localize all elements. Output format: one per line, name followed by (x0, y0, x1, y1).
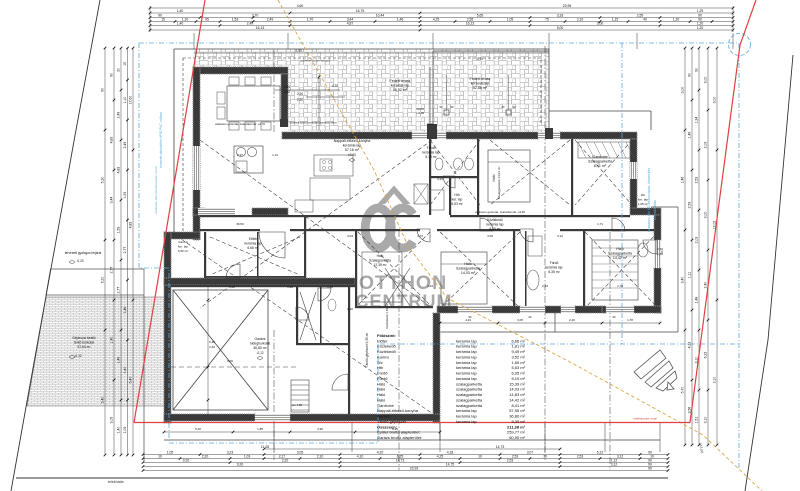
svg-text:1,13: 1,13 (272, 153, 278, 157)
svg-text:1,40: 1,40 (110, 337, 114, 344)
svg-text:57,16 m²: 57,16 m² (345, 148, 360, 152)
svg-text:Közlekedő: Közlekedő (487, 218, 503, 222)
svg-text:6,35 m²: 6,35 m² (548, 270, 560, 274)
svg-text:2,40: 2,40 (657, 247, 663, 251)
svg-text:1,73: 1,73 (417, 234, 423, 238)
svg-text:2,40: 2,40 (297, 92, 303, 96)
svg-text:4,87: 4,87 (347, 21, 354, 25)
svg-text:5,12: 5,12 (597, 450, 604, 454)
svg-text:1,46: 1,46 (397, 17, 404, 21)
svg-text:1,40: 1,40 (177, 9, 184, 13)
svg-text:3,12: 3,12 (617, 454, 624, 458)
svg-text:1,34: 1,34 (695, 117, 699, 124)
svg-text:1,71: 1,71 (597, 222, 603, 226)
svg-text:5,19 m²: 5,19 m² (425, 155, 437, 159)
svg-text:Előtér: Előtér (249, 237, 259, 241)
svg-text:1,05: 1,05 (167, 450, 174, 454)
svg-text:1,40: 1,40 (177, 21, 184, 25)
svg-text:Fürdő: Fürdő (550, 261, 559, 265)
svg-text:1,53: 1,53 (232, 17, 239, 21)
svg-text:Földszint:: Földszint: (377, 333, 396, 338)
svg-text:14,42 m²: 14,42 m² (509, 397, 525, 402)
svg-text:1,20: 1,20 (697, 21, 704, 25)
svg-text:75: 75 (545, 17, 549, 21)
svg-text:Háló: Háló (377, 387, 386, 392)
svg-text:szalagparketta: szalagparketta (456, 381, 483, 386)
svg-text:9,20: 9,20 (101, 277, 105, 284)
svg-text:14,03 m²: 14,03 m² (509, 387, 525, 392)
svg-text:vasbeton lemez szegély: vasbeton lemez szegély (300, 59, 331, 63)
svg-text:60,90 m²: 60,90 m² (509, 435, 525, 440)
svg-text:2,53: 2,53 (688, 202, 692, 209)
svg-text:1,46: 1,46 (681, 177, 685, 184)
svg-text:3,12: 3,12 (557, 234, 563, 238)
svg-text:3,05: 3,05 (297, 450, 304, 454)
svg-text:1,78: 1,78 (627, 318, 633, 322)
svg-text:4,83: 4,83 (117, 167, 121, 174)
svg-text:3,12: 3,12 (611, 462, 618, 466)
svg-text:1,65 m²: 1,65 m² (638, 202, 649, 206)
svg-text:3,07: 3,07 (527, 450, 534, 454)
svg-text:15: 15 (161, 17, 165, 21)
svg-text:-0,12: -0,12 (256, 351, 263, 355)
svg-text:Fedett terasz: Fedett terasz (470, 77, 491, 81)
svg-text:2,97: 2,97 (237, 153, 243, 157)
svg-text:kerámia lap: kerámia lap (456, 419, 477, 424)
svg-text:95: 95 (205, 17, 209, 21)
svg-text:1,65 m²: 1,65 m² (511, 360, 525, 365)
svg-text:57,55 m²: 57,55 m² (509, 408, 525, 413)
svg-text:36,80 m²: 36,80 m² (509, 414, 525, 419)
svg-text:3,00: 3,00 (704, 212, 708, 219)
svg-text:kerámia lap: kerámia lap (456, 349, 477, 354)
svg-text:2,53: 2,53 (577, 454, 584, 458)
svg-text:1,70: 1,70 (307, 17, 314, 21)
svg-text:1,46: 1,46 (123, 307, 127, 314)
svg-text:kerámia lap: kerámia lap (422, 150, 439, 154)
svg-text:Garázs bruttó alapterület:: Garázs bruttó alapterület: (377, 435, 422, 440)
svg-text:3,04: 3,04 (347, 234, 353, 238)
svg-text:10: 10 (543, 454, 547, 458)
svg-text:2,77: 2,77 (117, 287, 121, 294)
svg-text:kerámia lap: kerámia lap (456, 344, 477, 349)
svg-text:10: 10 (478, 454, 482, 458)
svg-text:Fürdő: Fürdő (377, 376, 388, 381)
svg-text:3,23: 3,23 (227, 450, 234, 454)
svg-text:211,38 m²: 211,38 m² (507, 424, 526, 429)
svg-text:5,40: 5,40 (195, 427, 201, 431)
svg-text:Hth: Hth (454, 193, 459, 197)
svg-text:2,40: 2,40 (284, 85, 290, 89)
svg-text:9,49 m²: 9,49 m² (489, 227, 501, 231)
svg-text:12,39 m²: 12,39 m² (373, 263, 387, 267)
svg-text:5,53 m²: 5,53 m² (451, 202, 463, 206)
svg-text:kerámia lap: kerámia lap (456, 365, 477, 370)
svg-text:3,00: 3,00 (704, 77, 708, 84)
svg-text:= 0,00: = 0,00 (416, 111, 425, 115)
svg-text:Wc: Wc (641, 193, 646, 197)
svg-text:2,77: 2,77 (110, 267, 114, 274)
svg-text:-0,12: -0,12 (74, 354, 81, 358)
svg-text:30: 30 (117, 68, 121, 72)
svg-text:3,00: 3,00 (597, 21, 604, 25)
svg-text:Fedett terasz: Fedett terasz (390, 79, 411, 83)
svg-text:kerámia lap: kerámia lap (486, 222, 503, 226)
svg-text:Kamra: Kamra (377, 354, 390, 359)
svg-text:2,49: 2,49 (117, 112, 121, 119)
svg-text:1,29: 1,29 (697, 9, 704, 13)
svg-text:Háló: Háló (377, 392, 386, 397)
svg-text:Hth: Hth (377, 365, 383, 370)
svg-text:Garázs: Garázs (255, 337, 266, 341)
svg-text:9,35 m²: 9,35 m² (511, 419, 525, 424)
svg-text:16,13: 16,13 (466, 21, 475, 25)
svg-text:2,10: 2,10 (317, 454, 324, 458)
svg-text:2,80: 2,80 (297, 98, 303, 102)
svg-text:Háló: Háló (464, 262, 471, 266)
svg-text:5,53 m²: 5,53 m² (511, 365, 525, 370)
svg-text:Nappali-étkező-konyha: Nappali-étkező-konyha (334, 139, 371, 143)
svg-text:térkő burkolat: térkő burkolat (74, 340, 94, 344)
svg-text:90: 90 (110, 73, 114, 77)
svg-text:kerámia lap: kerámia lap (343, 143, 362, 147)
svg-text:3,33: 3,33 (557, 13, 564, 17)
svg-text:közműkiváltás: közműkiváltás (653, 200, 657, 220)
svg-text:2,40: 2,40 (704, 282, 708, 289)
svg-text:4,10: 4,10 (377, 450, 384, 454)
svg-text:10: 10 (158, 454, 162, 458)
svg-text:6,00: 6,00 (227, 359, 233, 363)
svg-text:Sötétek külső burkolat-pusztul: Sötétek külső burkolat-pusztuló elem (289, 121, 337, 125)
svg-text:2,20: 2,20 (282, 458, 289, 462)
svg-text:14,83 m²: 14,83 m² (509, 392, 525, 397)
svg-text:1,81 m²: 1,81 m² (511, 344, 525, 349)
svg-text:5,00: 5,00 (557, 26, 564, 30)
svg-text:5,40: 5,40 (101, 397, 105, 404)
svg-text:90: 90 (688, 73, 692, 77)
svg-text:4,23: 4,23 (465, 318, 471, 322)
svg-text:52,86 m²: 52,86 m² (473, 86, 488, 90)
svg-text:2,03: 2,03 (704, 142, 708, 149)
svg-text:2,49: 2,49 (267, 17, 274, 21)
svg-text:5,70: 5,70 (681, 387, 685, 394)
svg-text:szabályozási vonal: szabályozási vonal (633, 416, 657, 420)
svg-text:Nappali-étkező-konyha: Nappali-étkező-konyha (377, 408, 419, 413)
svg-text:2,20: 2,20 (569, 318, 575, 322)
svg-text:kerámia lap: kerámia lap (244, 241, 261, 245)
svg-text:4,60: 4,60 (297, 4, 304, 8)
svg-text:Háló: Háló (492, 174, 496, 181)
svg-text:kerámia lap: kerámia lap (545, 265, 562, 269)
svg-text:4,70: 4,70 (477, 57, 483, 61)
svg-text:-0,20: -0,20 (76, 259, 83, 263)
svg-text:5,19 m²: 5,19 m² (511, 376, 525, 381)
svg-text:3,33: 3,33 (437, 177, 443, 181)
svg-text:Fürdő: Fürdő (427, 146, 436, 150)
svg-text:23,95: 23,95 (563, 4, 572, 8)
svg-text:14,03 m²: 14,03 m² (461, 271, 476, 275)
svg-text:3,44: 3,44 (110, 197, 114, 204)
svg-text:Közlekedő: Közlekedő (377, 349, 396, 354)
svg-text:szalagparketta: szalagparketta (456, 403, 483, 408)
svg-text:Közlekedő 1,81 m²: Közlekedő 1,81 m² (385, 303, 389, 328)
svg-text:Összesen:: Összesen: (377, 424, 397, 429)
svg-text:3,10: 3,10 (704, 417, 708, 424)
svg-text:4,00: 4,00 (229, 285, 235, 289)
svg-text:kerámia lap: kerámia lap (456, 338, 477, 343)
svg-text:Garázs: Garázs (377, 414, 390, 419)
svg-text:2,80: 2,80 (284, 90, 290, 94)
svg-text:57,64 m²: 57,64 m² (77, 345, 91, 349)
svg-text:16,75: 16,75 (356, 9, 365, 13)
svg-text:Wc: Wc (377, 360, 383, 365)
svg-text:kerámia lap: kerámia lap (456, 414, 477, 419)
svg-text:tervezett gyalogos bejárat: tervezett gyalogos bejárat (65, 251, 102, 255)
svg-text:14,75: 14,75 (446, 462, 455, 466)
svg-text:3,00: 3,00 (681, 87, 685, 94)
svg-text:4,10: 4,10 (357, 454, 364, 458)
svg-text:1,46: 1,46 (688, 132, 692, 139)
svg-text:2,20: 2,20 (347, 307, 353, 311)
svg-text:15,39 m²: 15,39 m² (509, 381, 525, 386)
svg-text:1,53: 1,53 (123, 192, 127, 199)
svg-text:1,15: 1,15 (612, 17, 619, 21)
svg-text:2,53: 2,53 (695, 177, 699, 184)
svg-text:11,60: 11,60 (294, 49, 302, 53)
svg-text:kerámia lap: kerámia lap (391, 83, 410, 87)
svg-text:Szalagparketta: Szalagparketta (369, 258, 391, 262)
svg-text:ker. lap: ker. lap (638, 197, 648, 201)
svg-text:15: 15 (123, 62, 127, 66)
svg-text:2,10: 2,10 (577, 17, 584, 21)
svg-text:259,77 m²: 259,77 m² (507, 430, 526, 435)
svg-text:16,13: 16,13 (256, 26, 265, 30)
svg-text:3,70: 3,70 (252, 13, 259, 17)
svg-text:Gardrobe: Gardrobe (377, 403, 395, 408)
svg-text:kerámia lap: kerámia lap (456, 371, 477, 376)
svg-text:3,52 m²: 3,52 m² (178, 249, 189, 253)
svg-text:2,40: 2,40 (209, 345, 215, 349)
svg-text:4,83: 4,83 (129, 222, 133, 229)
svg-text:4,25: 4,25 (487, 234, 493, 238)
svg-text:Háló: Háló (377, 381, 386, 386)
svg-text:1,48: 1,48 (695, 297, 699, 304)
svg-text:kerámia lap: kerámia lap (456, 354, 477, 359)
svg-text:vasbeton gerenda, zsaluzási sí: vasbeton gerenda, zsaluzási sík: +3,25 (475, 210, 525, 214)
svg-text:90: 90 (101, 88, 105, 92)
svg-text:6,66 m²: 6,66 m² (511, 338, 525, 343)
svg-text:Háló: Háló (377, 254, 384, 258)
svg-text:vasbeton gerenda, zsaluzási sí: vasbeton gerenda, zsaluzási sík: +2,70 (215, 122, 265, 126)
svg-text:6,00: 6,00 (427, 122, 433, 126)
svg-text:4,90: 4,90 (317, 427, 323, 431)
svg-text:1,51: 1,51 (695, 417, 699, 424)
svg-text:1,20: 1,20 (697, 26, 704, 30)
svg-text:2,49: 2,49 (247, 21, 254, 25)
svg-text:4,70: 4,70 (332, 84, 338, 88)
svg-text:9,20: 9,20 (237, 462, 244, 466)
svg-text:11,08: 11,08 (261, 445, 269, 449)
svg-text:2,03: 2,03 (695, 237, 699, 244)
svg-text:1,50: 1,50 (657, 252, 663, 256)
svg-text:2,49: 2,49 (123, 142, 127, 149)
svg-text:szabadon álló közművezeték, iv: szabadon álló közművezeték, ivóvíz (154, 166, 158, 214)
svg-text:hidegburkolat: hidegburkolat (250, 341, 270, 345)
svg-text:Gépkocsi beálló: Gépkocsi beálló (72, 336, 96, 340)
svg-text:14,73: 14,73 (496, 445, 505, 449)
svg-text:5,65: 5,65 (477, 13, 484, 17)
svg-text:Szalagparketta: Szalagparketta (456, 266, 480, 270)
svg-text:1,46: 1,46 (117, 357, 121, 364)
svg-text:5,40: 5,40 (209, 340, 215, 344)
svg-text:90: 90 (695, 68, 699, 72)
svg-text:1,05: 1,05 (507, 17, 514, 21)
svg-text:1,05: 1,05 (123, 427, 127, 434)
svg-text:1,20: 1,20 (287, 285, 293, 289)
svg-text:1,78: 1,78 (617, 284, 623, 288)
svg-text:5,40: 5,40 (129, 377, 133, 384)
svg-text:14,42 m²: 14,42 m² (613, 256, 628, 260)
svg-text:4,25: 4,25 (437, 454, 444, 458)
svg-text:4,23: 4,23 (688, 342, 692, 349)
svg-text:3,00: 3,00 (713, 97, 717, 104)
svg-text:4,25: 4,25 (433, 17, 440, 21)
svg-text:2,33: 2,33 (542, 284, 548, 288)
svg-text:23,93: 23,93 (410, 466, 419, 470)
svg-text:3,10: 3,10 (713, 377, 717, 384)
svg-text:4,83: 4,83 (110, 137, 114, 144)
svg-text:8,41 m²: 8,41 m² (511, 403, 525, 408)
svg-text:36,80 m²: 36,80 m² (253, 346, 267, 350)
svg-text:tervezett vízbekötés HP30 PVC: tervezett vízbekötés HP30 PVC csőben (159, 112, 163, 168)
svg-text:Előtér: Előtér (377, 338, 388, 343)
svg-text:6,66 m²: 6,66 m² (247, 246, 259, 250)
svg-text:Gardrobe: Gardrobe (592, 155, 607, 159)
svg-text:9,49 m²: 9,49 m² (511, 349, 525, 354)
svg-text:5,30: 5,30 (101, 177, 105, 184)
svg-text:Épület bruttó alapterület:: Épület bruttó alapterület: (377, 430, 421, 435)
svg-text:pm 1,85: pm 1,85 (292, 403, 303, 407)
svg-text:Közlekedő: Közlekedő (377, 344, 396, 349)
svg-text:szalagparketta: szalagparketta (456, 397, 483, 402)
svg-text:ker. lap: ker. lap (452, 197, 463, 201)
svg-text:Háló: Háló (377, 397, 386, 402)
svg-text:Tároló-gépészet 9,35 m²: Tároló-gépészet 9,35 m² (365, 333, 369, 368)
svg-text:14,73: 14,73 (396, 458, 405, 462)
svg-text:3,40: 3,40 (681, 277, 685, 284)
svg-text:8,41 m²: 8,41 m² (594, 164, 607, 168)
svg-text:4,18: 4,18 (447, 450, 454, 454)
svg-text:telekhatár: telekhatár (108, 480, 125, 484)
svg-text:szalagparketta: szalagparketta (456, 387, 483, 392)
svg-text:1,20: 1,20 (673, 17, 680, 21)
svg-text:2,77: 2,77 (123, 247, 127, 254)
svg-text:2,20: 2,20 (202, 454, 209, 458)
svg-text:kerámia lap: kerámia lap (456, 360, 477, 365)
svg-text:1,40: 1,40 (123, 367, 127, 374)
svg-text:Háló: Háló (616, 247, 623, 251)
svg-text:3,52 m²: 3,52 m² (511, 354, 525, 359)
svg-text:Szalagparketta 14,03 m²: Szalagparketta 14,03 m² (497, 167, 501, 200)
svg-text:17,60: 17,60 (129, 96, 133, 105)
svg-text:±0,00: ±0,00 (348, 153, 356, 157)
svg-text:kerámia lap: kerámia lap (456, 376, 477, 381)
svg-text:3,05: 3,05 (517, 318, 523, 322)
svg-text:Szalagparketta: Szalagparketta (588, 159, 612, 163)
svg-text:16,52 m²: 16,52 m² (393, 88, 408, 92)
svg-text:Tároló-gépészet: Tároló-gépészet (377, 419, 407, 424)
svg-text:4,23: 4,23 (427, 284, 433, 288)
svg-text:kerámia lap: kerámia lap (471, 81, 490, 85)
svg-text:90: 90 (648, 466, 652, 470)
svg-text:40: 40 (643, 17, 647, 21)
svg-text:1,85: 1,85 (257, 427, 263, 431)
svg-text:2,53: 2,53 (507, 458, 514, 462)
svg-text:Kamra: Kamra (178, 240, 187, 244)
svg-text:kerámia lap: kerámia lap (456, 408, 477, 413)
svg-text:1,40: 1,40 (117, 427, 121, 434)
svg-text:1,10: 1,10 (123, 97, 127, 104)
svg-text:3,05: 3,05 (110, 417, 114, 424)
svg-text:10,44: 10,44 (376, 13, 385, 17)
svg-text:6,23: 6,23 (704, 352, 708, 359)
svg-text:Szalagparketta: Szalagparketta (608, 251, 632, 255)
svg-text:6,35 m²: 6,35 m² (511, 371, 525, 376)
svg-text:szalagparketta: szalagparketta (456, 392, 483, 397)
svg-text:1,53: 1,53 (117, 227, 121, 234)
svg-text:ker. lap: ker. lap (178, 244, 188, 248)
svg-text:9,20: 9,20 (183, 458, 190, 462)
svg-text:Fürdő: Fürdő (377, 371, 388, 376)
svg-text:36,50: 36,50 (236, 222, 244, 226)
svg-text:1,40: 1,40 (327, 285, 333, 289)
svg-text:1,11: 1,11 (688, 272, 692, 278)
svg-text:1,03: 1,03 (244, 454, 251, 458)
